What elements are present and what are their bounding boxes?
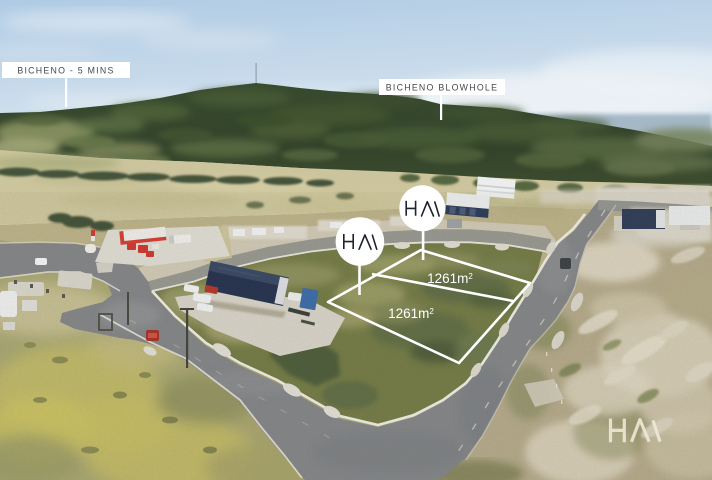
svg-text:1261m2: 1261m2 <box>388 306 434 321</box>
svg-text:1261m2: 1261m2 <box>427 271 473 286</box>
svg-text:BICHENO BLOWHOLE: BICHENO BLOWHOLE <box>386 83 498 93</box>
svg-text:BICHENO - 5 MINS: BICHENO - 5 MINS <box>17 66 114 76</box>
